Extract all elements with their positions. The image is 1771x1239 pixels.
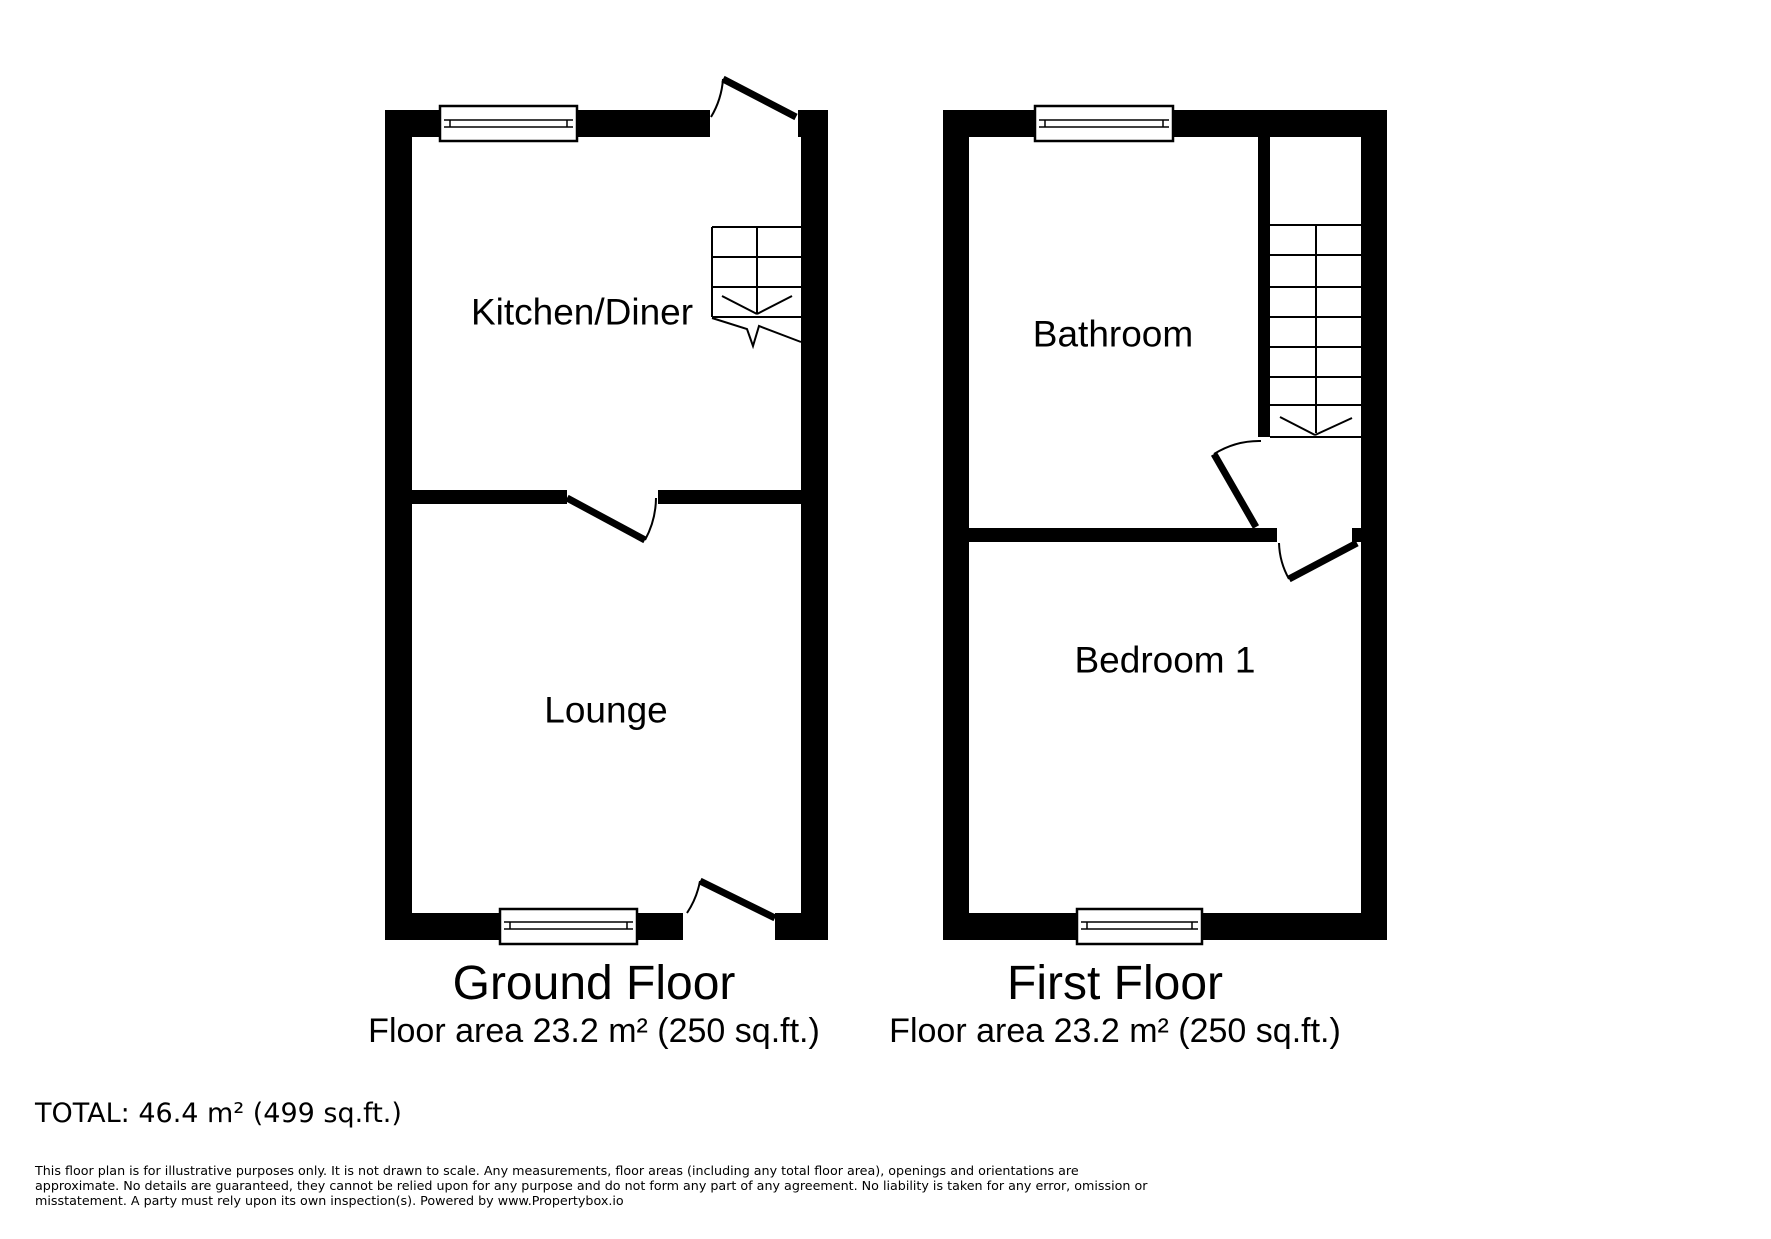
stairs — [712, 227, 801, 346]
room-label-kitchen-diner: Kitchen/Diner — [471, 294, 693, 331]
ground-floor-area-text: Floor area 23.2 m² (250 sq.ft.) — [368, 1014, 820, 1048]
ground-floor-walls — [385, 110, 828, 940]
room-label-bedroom-1: Bedroom 1 — [1075, 642, 1256, 679]
ground-floor-title: Ground Floor — [453, 960, 736, 1008]
stairs — [1270, 225, 1361, 437]
first-floor-title: First Floor — [1007, 960, 1223, 1008]
room-label-bathroom: Bathroom — [1033, 316, 1193, 353]
ground-floor-plan — [385, 79, 828, 944]
window — [1035, 106, 1173, 141]
first-floor-plan — [943, 106, 1387, 944]
room-label-lounge: Lounge — [544, 692, 667, 729]
total-area-text: TOTAL: 46.4 m² (499 sq.ft.) — [35, 1100, 402, 1127]
disclaimer-line: approximate. No details are guaranteed, … — [35, 1178, 1147, 1193]
door — [1279, 543, 1357, 579]
floorplan-drawing — [0, 0, 1771, 1239]
door — [687, 881, 775, 918]
floorplan-page: Kitchen/Diner Lounge Bathroom Bedroom 1 … — [0, 0, 1771, 1239]
first-floor-walls — [943, 110, 1387, 940]
door — [711, 79, 796, 117]
window — [1077, 909, 1202, 944]
disclaimer-line: misstatement. A party must rely upon its… — [35, 1193, 1147, 1208]
window — [440, 106, 577, 141]
door — [1214, 441, 1261, 527]
disclaimer-text: This floor plan is for illustrative purp… — [35, 1163, 1147, 1209]
disclaimer-line: This floor plan is for illustrative purp… — [35, 1163, 1147, 1178]
window — [500, 909, 637, 944]
first-floor-area-text: Floor area 23.2 m² (250 sq.ft.) — [889, 1014, 1341, 1048]
door — [567, 498, 656, 540]
